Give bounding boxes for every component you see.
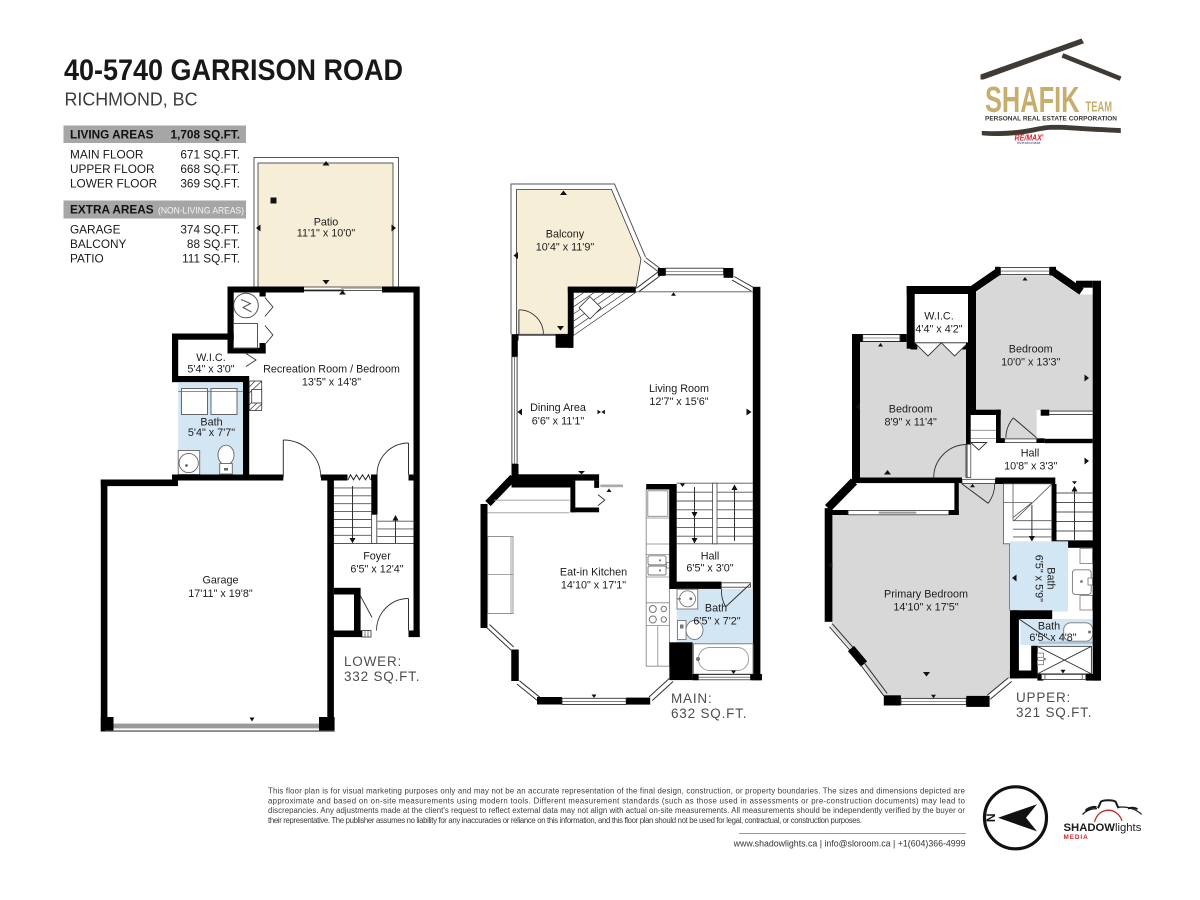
svg-text:TEAM: TEAM bbox=[1086, 100, 1113, 116]
svg-text:6'5" x 3'0": 6'5" x 3'0" bbox=[686, 563, 733, 575]
svg-text:5'4" x 3'0": 5'4" x 3'0" bbox=[187, 364, 234, 376]
svg-text:13'5" x 14'8": 13'5" x 14'8" bbox=[302, 377, 361, 389]
svg-text:11'1" x 10'0": 11'1" x 10'0" bbox=[297, 228, 356, 240]
svg-text:Bath: Bath bbox=[705, 603, 727, 615]
svg-text:their representative. The publ: their representative. The publisher assu… bbox=[268, 816, 862, 825]
svg-text:PATIO: PATIO bbox=[70, 252, 104, 266]
svg-text:W.I.C.: W.I.C. bbox=[924, 311, 953, 323]
svg-text:UPPER:: UPPER: bbox=[1016, 690, 1071, 705]
svg-text:BALCONY: BALCONY bbox=[70, 237, 127, 251]
svg-text:SHADOWlights: SHADOWlights bbox=[1064, 822, 1142, 834]
svg-text:Hall: Hall bbox=[701, 551, 720, 563]
svg-text:LOWER FLOOR: LOWER FLOOR bbox=[70, 177, 157, 191]
svg-text:LOWER:: LOWER: bbox=[344, 654, 402, 669]
svg-text:10'8" x 3'3": 10'8" x 3'3" bbox=[1004, 461, 1057, 473]
svg-text:EXTRA AREAS: EXTRA AREAS bbox=[70, 203, 154, 217]
svg-text:MEDIA: MEDIA bbox=[1064, 834, 1089, 841]
svg-text:Balcony: Balcony bbox=[546, 229, 585, 241]
svg-text:MAIN:: MAIN: bbox=[671, 691, 713, 706]
svg-text:668 SQ.FT.: 668 SQ.FT. bbox=[180, 162, 240, 176]
svg-text:LIVING AREAS: LIVING AREAS bbox=[70, 128, 154, 142]
svg-text:GARAGE: GARAGE bbox=[70, 222, 121, 236]
svg-text:Bath: Bath bbox=[1038, 621, 1060, 633]
svg-text:6'5" x 4'8": 6'5" x 4'8" bbox=[1029, 632, 1076, 644]
svg-text:W.I.C.: W.I.C. bbox=[196, 352, 225, 364]
svg-text:321 SQ.FT.: 321 SQ.FT. bbox=[1016, 705, 1092, 720]
svg-text:Dining Area: Dining Area bbox=[530, 402, 586, 414]
svg-text:®: ® bbox=[1042, 134, 1045, 138]
svg-text:www.shadowlights.ca | info@slo: www.shadowlights.ca | info@sloroom.ca | … bbox=[733, 839, 966, 849]
svg-text:6'6" x 11'1": 6'6" x 11'1" bbox=[532, 416, 585, 428]
svg-text:6'5" x 12'4": 6'5" x 12'4" bbox=[350, 564, 403, 576]
svg-text:Bath: Bath bbox=[1045, 567, 1057, 589]
svg-text:Foyer: Foyer bbox=[363, 551, 391, 563]
svg-text:17'11" x 19'8": 17'11" x 19'8" bbox=[188, 588, 253, 600]
svg-text:12'7" x 15'6": 12'7" x 15'6" bbox=[649, 396, 708, 408]
svg-text:6'5" x 5'9": 6'5" x 5'9" bbox=[1033, 555, 1045, 602]
svg-text:Bedroom: Bedroom bbox=[889, 404, 933, 416]
svg-text:RICHMOND, BC: RICHMOND, BC bbox=[65, 90, 198, 110]
svg-text:369 SQ.FT.: 369 SQ.FT. bbox=[180, 177, 240, 191]
svg-text:88 SQ.FT.: 88 SQ.FT. bbox=[187, 237, 240, 251]
svg-text:Living Room: Living Room bbox=[649, 383, 709, 395]
svg-text:Hall: Hall bbox=[1021, 448, 1040, 460]
svg-text:Westcoast: Westcoast bbox=[1017, 140, 1042, 145]
svg-text:Recreation Room / Bedroom: Recreation Room / Bedroom bbox=[263, 364, 400, 376]
svg-text:N: N bbox=[984, 813, 998, 822]
svg-text:374 SQ.FT.: 374 SQ.FT. bbox=[180, 222, 240, 236]
svg-text:632 SQ.FT.: 632 SQ.FT. bbox=[671, 706, 747, 721]
svg-text:Garage: Garage bbox=[202, 575, 238, 587]
svg-text:PERSONAL REAL ESTATE CORPORATI: PERSONAL REAL ESTATE CORPORATION bbox=[985, 115, 1117, 122]
svg-text:1,708 SQ.FT.: 1,708 SQ.FT. bbox=[170, 128, 240, 142]
svg-text:14'10" x 17'5": 14'10" x 17'5" bbox=[893, 602, 958, 614]
svg-text:111 SQ.FT.: 111 SQ.FT. bbox=[182, 252, 240, 266]
svg-text:approximate and based on on-si: approximate and based on on-site measure… bbox=[268, 796, 966, 805]
svg-text:(NON-LIVING AREAS): (NON-LIVING AREAS) bbox=[158, 206, 244, 217]
svg-text:671 SQ.FT.: 671 SQ.FT. bbox=[180, 147, 240, 161]
svg-text:MAIN FLOOR: MAIN FLOOR bbox=[70, 147, 143, 161]
svg-text:40-5740 GARRISON ROAD: 40-5740 GARRISON ROAD bbox=[64, 54, 403, 87]
svg-text:10'4" x 11'9": 10'4" x 11'9" bbox=[536, 242, 595, 254]
svg-text:Primary Bedroom: Primary Bedroom bbox=[884, 589, 968, 601]
svg-text:Bedroom: Bedroom bbox=[1009, 344, 1053, 356]
svg-text:This floor plan is for visual: This floor plan is for visual marketing … bbox=[268, 787, 965, 796]
svg-text:8'9" x 11'4": 8'9" x 11'4" bbox=[884, 417, 937, 429]
svg-text:14'10" x 17'1": 14'10" x 17'1" bbox=[561, 579, 626, 591]
svg-text:Eat-in Kitchen: Eat-in Kitchen bbox=[560, 566, 627, 578]
svg-text:4'4" x 4'2": 4'4" x 4'2" bbox=[915, 324, 962, 336]
svg-text:discrepancies. Any adjustments: discrepancies. Any adjustments made at t… bbox=[268, 806, 965, 815]
svg-text:SHAFIK: SHAFIK bbox=[985, 79, 1080, 120]
svg-text:6'5" x 7'2": 6'5" x 7'2" bbox=[693, 616, 740, 628]
svg-text:10'0" x 13'3": 10'0" x 13'3" bbox=[1001, 357, 1060, 369]
svg-text:UPPER FLOOR: UPPER FLOOR bbox=[70, 162, 155, 176]
svg-text:332 SQ.FT.: 332 SQ.FT. bbox=[344, 669, 420, 684]
svg-text:5'4" x 7'7": 5'4" x 7'7" bbox=[188, 427, 235, 439]
